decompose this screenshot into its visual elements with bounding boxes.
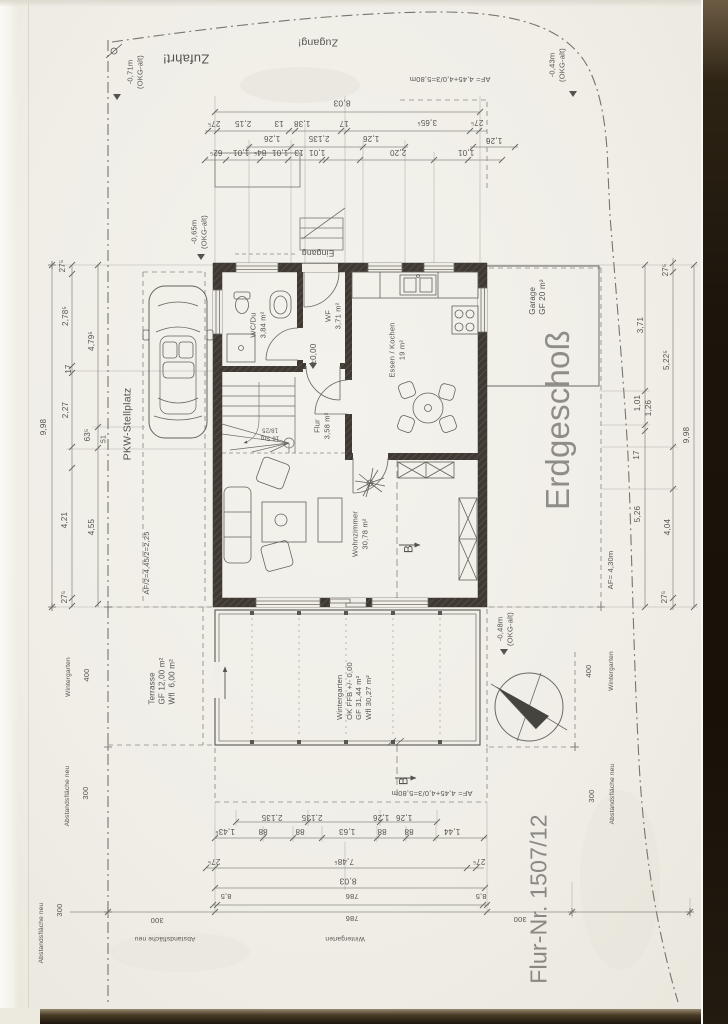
zone-label: Wintergarten <box>325 934 365 942</box>
dim: 2,135 <box>308 133 329 143</box>
dim: 786 <box>345 891 358 901</box>
dim: 8,03 <box>339 876 356 887</box>
dim: 1,38 <box>294 118 310 128</box>
zone-dim: 400 <box>82 668 92 681</box>
level-note-065: -0,65m (OKG-alt) <box>189 215 208 249</box>
scan-edge-right <box>701 0 728 1024</box>
dim: 1,63 <box>339 826 355 836</box>
zone-dim: 300 <box>587 789 597 802</box>
dim: 62⁵ <box>210 147 223 157</box>
level-note-048: -0,48m (OKG-alt) <box>495 612 514 646</box>
dim: 51 <box>101 435 110 443</box>
scan-edge-top <box>0 0 705 7</box>
dim: 1,44 <box>444 826 460 836</box>
zone-label: Wintergarten <box>608 651 616 691</box>
af-formula-bottom: AF= 4,45+4,0/3=5,80m <box>392 788 473 798</box>
dim: 8,5 <box>220 891 231 901</box>
dim: 2,20 <box>390 147 406 157</box>
parcel-number: Flur-Nr. 1507/12 <box>524 814 553 983</box>
room-wintergarten: Wintergarten OK FFB +/- 0,00 GF 31,44 m²… <box>335 662 373 720</box>
af-formula-half: AF/2=4,45/2=2,25 <box>142 531 152 594</box>
dim: 27⁵ <box>471 117 484 127</box>
zone-label: Abstandsfläche neu <box>64 766 72 827</box>
section-letter-b: B <box>396 777 411 785</box>
dim: 17 <box>339 118 348 128</box>
label-zugang: Zugang! <box>298 35 338 48</box>
dim: 84⁵ <box>254 147 267 157</box>
scanned-floor-plan-page: Zufahrt!Zugang!-0,71m (OKG-alt)-0,43m (O… <box>0 0 728 1024</box>
zone-label: Abstandsfläche neu <box>609 764 617 825</box>
dim: 1,01 <box>272 147 288 157</box>
dim: 5,22⁵ <box>662 350 672 370</box>
zone-label: Abstandsfläche neu <box>38 903 46 964</box>
dim: 27⁵ <box>660 591 670 604</box>
level-note-043: -0,43m (OKG-alt) <box>547 48 566 82</box>
room-wc: WC/Du 3,84 m² <box>248 312 267 339</box>
dim: 2,78⁵ <box>61 306 71 326</box>
dim: 1,01 <box>458 147 474 157</box>
dim: 5,26 <box>633 506 643 522</box>
room-essen-kochen: Essen / Kochen 19 m² <box>387 322 406 377</box>
dim: 13 <box>274 118 283 128</box>
room-wohnzimmer: Wohnzimmer 30,78 m² <box>350 511 369 557</box>
dim: 17 <box>64 364 74 373</box>
paper-crease <box>28 0 29 1024</box>
dim: 7,48⁵ <box>334 856 354 866</box>
dim-top-total: 8,03 <box>333 98 350 109</box>
floor-title: Erdgeschoß <box>537 330 579 510</box>
dim: 4,79⁵ <box>87 331 97 351</box>
dim: 88 <box>258 826 267 836</box>
label-zufahrt: Zufahrt! <box>163 50 209 67</box>
dim: 13 <box>294 147 303 157</box>
level-note-071: -0,71m (OKG-alt) <box>125 55 144 89</box>
dim: 1,26 <box>644 400 654 416</box>
dim: 300 <box>150 915 163 925</box>
af-formula-top: AF= 4,45+4,0/3=5,80m <box>410 74 491 84</box>
dim: 2,15 <box>235 118 251 128</box>
dim: 2,135 <box>301 812 322 822</box>
dim: 3,71 <box>636 317 646 333</box>
af-formula-430: AF= 4,30m <box>606 551 616 590</box>
dim: 27⁵ <box>661 264 671 277</box>
dim: 3,65⁵ <box>417 117 437 127</box>
dim: 2,27 <box>61 402 71 418</box>
dim: 88 <box>377 826 386 836</box>
dim: 4,21 <box>60 512 70 528</box>
room-terrasse: Terrasse GF 12,00 m² Wfl 6,00 m² <box>148 657 179 704</box>
dim: 27⁵ <box>473 856 486 866</box>
zone-dim: 300 <box>81 786 91 799</box>
dim: 1,01 <box>633 395 643 411</box>
stair-note: 16 Stg 18/25 <box>261 425 280 440</box>
dim: 9,98 <box>39 419 49 435</box>
section-letter-b: B <box>401 545 416 553</box>
dim: 27⁵ <box>208 856 221 866</box>
dim: 1,26 <box>264 133 280 143</box>
dim: 300 <box>513 914 526 924</box>
dim: 63⁵ <box>83 429 93 442</box>
room-flur: Flur 3,58 m² <box>312 413 331 440</box>
zone-dim: 300 <box>55 903 65 916</box>
dim: 1,26 <box>396 812 412 822</box>
dim: 8,5 <box>475 891 486 901</box>
scan-edge-left <box>0 0 18 1024</box>
room-garage: Garage GF 20 m² <box>528 279 548 314</box>
dim: 1,01 <box>309 147 325 157</box>
dim: 88 <box>295 826 304 836</box>
room-wf: WF 3,71 m² <box>323 303 342 330</box>
level-zero: ±0,00 <box>309 344 319 365</box>
dim: 1,26 <box>373 812 389 822</box>
annotation-layer: Zufahrt!Zugang!-0,71m (OKG-alt)-0,43m (O… <box>0 0 728 1024</box>
dim: 4,04 <box>663 519 673 535</box>
scan-edge-bottom <box>40 1009 705 1024</box>
label-eingang: Eingang <box>302 248 335 259</box>
dim: 17 <box>632 450 642 459</box>
dim: 786 <box>345 913 358 923</box>
dim: 1,01 <box>233 147 249 157</box>
dim: 27⁵ <box>208 118 221 128</box>
dim: 27⁵ <box>58 260 68 273</box>
dim: 1,43⁵ <box>215 826 235 836</box>
dim: 1,26 <box>363 133 379 143</box>
zone-dim: 400 <box>584 664 594 677</box>
zone-label: Abstandsfläche neu <box>135 934 196 942</box>
dim: 2,135 <box>261 812 282 822</box>
zone-label: Wintergarten <box>65 657 73 697</box>
dim: 9,98 <box>682 427 692 443</box>
label-pkw-stellplatz: PKW-Stellplatz <box>121 388 134 461</box>
dim: 27⁵ <box>60 591 70 604</box>
dim: 4,55 <box>87 519 97 535</box>
dim: 1,26 <box>486 135 502 145</box>
dim: 88 <box>404 826 413 836</box>
